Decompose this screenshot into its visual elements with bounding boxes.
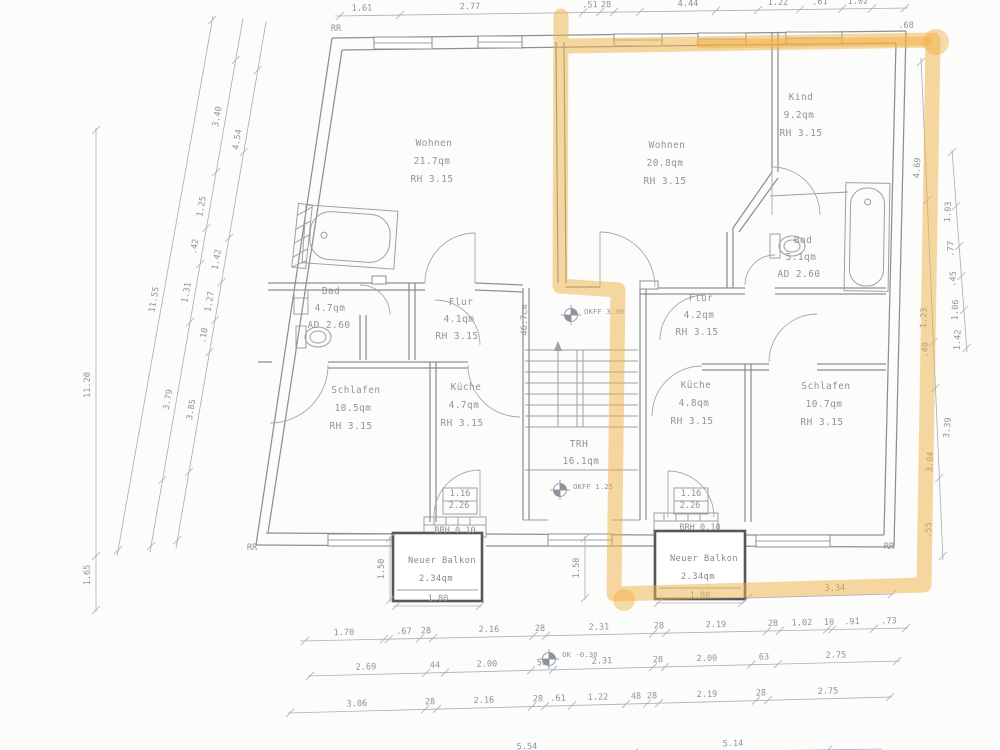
dim-label: 1.61	[352, 3, 373, 13]
level-marker-mid: OKFF 1.25	[550, 480, 613, 500]
dimension-chain: 3.06282.1628.611.2248282.19282.75	[286, 686, 894, 717]
dim-label: 2.19	[706, 620, 727, 630]
dim-label: 2.00	[476, 659, 497, 670]
room-area: 4.7qm	[315, 303, 346, 314]
stair-direction-arrow	[554, 341, 562, 351]
dim-label: 11.55	[147, 286, 161, 313]
room-area: 10.5qm	[335, 403, 372, 414]
dim-label: 4.44	[678, 0, 699, 9]
room-area: 21.7qm	[414, 156, 451, 167]
annotation-label: .68	[898, 21, 914, 31]
room-area: 16.1qm	[563, 456, 600, 467]
door-arc	[745, 255, 775, 285]
level-marker-label: OKFF 1.25	[573, 482, 613, 491]
dimension-chain: 3.401.25.421.313.79	[147, 18, 243, 552]
annotation-label: BRH 0.10	[679, 523, 720, 533]
dim-label: 1.31	[180, 282, 193, 304]
room-area: 4.8qm	[679, 398, 710, 409]
room-area: 10.7qm	[806, 399, 843, 410]
dim-label: 3.40	[211, 106, 224, 128]
room-label-kueche-left: Küche	[451, 382, 482, 393]
door-arc	[425, 233, 475, 283]
room-label-schlafen-right: Schlafen	[801, 381, 850, 392]
dimension-chain: 5.545.14	[395, 739, 882, 750]
room-label-schlafen-left: Schlafen	[331, 385, 380, 396]
dim-label: 1.03	[943, 201, 954, 222]
dim-label: 1.02	[792, 618, 813, 628]
dim-label: 2.16	[479, 625, 500, 635]
dim-label: 2.16	[473, 696, 494, 707]
dim-label: 1.22	[768, 0, 789, 8]
dimension-chain: 2.69442.00502.31282.00632.75	[306, 650, 901, 680]
room-label-wohnen-left: Wohnen	[416, 138, 453, 149]
dim-label: 5.14	[723, 739, 744, 749]
dim-label: 28	[535, 624, 546, 634]
dim-label: 28	[768, 619, 779, 629]
dim-tick	[254, 66, 262, 74]
dim-label: 1.42	[211, 249, 224, 271]
dim-label: 3.79	[162, 389, 175, 411]
dim-tick	[159, 476, 167, 484]
dim-tick	[196, 260, 204, 268]
door-arc	[600, 232, 655, 287]
annotation-label: 2.26	[680, 501, 701, 511]
dim-label: 2.75	[817, 686, 838, 697]
dim-label: .10	[198, 327, 211, 344]
dim-label: .91	[844, 617, 860, 627]
dim-label: .61	[550, 694, 566, 704]
dim-label: 2.75	[825, 650, 846, 661]
room-height: RH 3.15	[675, 327, 718, 338]
dim-tick	[114, 546, 122, 554]
room-height: RH 3.15	[410, 174, 453, 185]
room-height: RH 3.15	[779, 128, 822, 139]
room-height: RH 3.15	[670, 416, 713, 427]
room-area: 20.8qm	[647, 158, 684, 169]
dim-label: 4.69	[912, 157, 923, 178]
dim-label: .61	[812, 0, 828, 7]
dim-label: 2.19	[696, 690, 717, 701]
highlight-marker-annotation	[560, 16, 949, 611]
dim-label: 1.25	[195, 196, 208, 218]
balcony-left	[393, 533, 482, 601]
room-area: 4.7qm	[449, 400, 480, 411]
dim-label: 28	[425, 697, 436, 707]
dim-label: 1.02	[848, 0, 869, 7]
floorplan-scan-page: 1.70.67282.16282.31282.19281.0210.91.732…	[0, 0, 1000, 750]
dim-label: 5.54	[517, 742, 538, 750]
dimension-chains: 1.70.67282.16282.31282.19281.0210.91.732…	[83, 0, 971, 750]
dim-label: 28	[654, 621, 665, 631]
floorplan-canvas: 1.70.67282.16282.31282.19281.0210.91.732…	[0, 0, 1000, 750]
dim-label: 28	[601, 0, 612, 10]
dimension-chain: 11.55	[114, 16, 216, 556]
dim-label: 3.06	[346, 699, 367, 710]
dim-label: 2.31	[589, 622, 610, 632]
dim-tick	[232, 56, 240, 64]
dim-label: .77	[946, 241, 957, 257]
room-labels: Wohnen 21.7qm RH 3.15 Wohnen 20.8qm RH 3…	[307, 92, 850, 584]
sink-icon	[294, 290, 308, 314]
dim-tick	[147, 542, 155, 550]
room-label-bad-right: Bad	[794, 235, 812, 246]
bathtub-icon	[844, 183, 890, 292]
dim-label: 10	[824, 618, 835, 628]
room-label-balkon-left: Neuer Balkon	[408, 556, 476, 566]
room-area: 2.34qm	[419, 574, 453, 584]
level-marker-ground: OK -0.30	[539, 649, 598, 669]
room-height: RH 3.15	[800, 417, 843, 428]
dim-label: 44	[430, 661, 441, 671]
dim-label: 1.65	[83, 565, 93, 586]
dimension-chain: 1.612.77.51284.441.22.611.02	[335, 0, 909, 20]
room-height: AD 2.60	[777, 269, 820, 280]
dim-label: 2.69	[355, 662, 376, 673]
room-area: 4.2qm	[684, 310, 715, 321]
door-arc	[769, 314, 817, 362]
dim-label: .67	[396, 627, 412, 637]
annotation-label: 3.39	[942, 417, 954, 438]
room-area: 9.2qm	[784, 110, 815, 121]
dim-tick	[218, 278, 226, 286]
dim-tick	[173, 536, 181, 544]
annotation-label: BRH 0.10	[434, 526, 475, 536]
annotation-label: RR	[884, 542, 895, 552]
door-arc	[772, 167, 820, 215]
room-label-flur-left: Flur	[449, 297, 474, 308]
dimension-chain: 1.70.67282.16282.31282.19281.0210.91.73	[300, 616, 910, 645]
annotation-label: 46.7cm	[520, 304, 530, 335]
dim-label: 28	[421, 626, 432, 636]
dim-label: 63	[759, 652, 770, 662]
room-label-balkon-right: Neuer Balkon	[670, 554, 738, 564]
dim-label: 1.50	[377, 559, 387, 580]
dimension-chain: 11.201.65	[83, 126, 100, 614]
room-area: 5.1qm	[786, 252, 817, 263]
dim-tick	[212, 168, 220, 176]
dim-label: 1.22	[587, 693, 608, 704]
dim-label: 1.50	[572, 558, 582, 579]
dim-tick	[225, 234, 233, 242]
room-label-bad-left: Bad	[322, 286, 340, 297]
dim-label: .45	[948, 271, 959, 287]
highlight-blob	[613, 589, 635, 611]
dim-label: .73	[881, 616, 897, 626]
room-height: RH 3.15	[435, 331, 478, 342]
room-area: 2.34qm	[681, 572, 715, 582]
dimension-line	[117, 16, 213, 556]
highlight-blob	[923, 29, 949, 55]
dim-label: 11.20	[83, 372, 93, 398]
dim-label: 28	[653, 655, 664, 665]
room-label-wohnen-right: Wohnen	[649, 140, 686, 151]
room-height: RH 3.15	[440, 418, 483, 429]
annotation-label: RR	[331, 24, 342, 34]
dim-label: .51	[582, 0, 598, 10]
dim-label: 1.70	[334, 628, 355, 638]
dim-label: .42	[189, 238, 202, 255]
level-marker-label: OK -0.30	[562, 650, 598, 659]
dim-label: 1.06	[950, 299, 961, 320]
annotation-label: 1.16	[450, 489, 471, 499]
room-label-flur-right: Flur	[689, 293, 714, 304]
room-height: RH 3.15	[643, 176, 686, 187]
dim-label: 28	[647, 691, 658, 701]
dim-tick	[211, 316, 219, 324]
dim-label: 48	[631, 692, 642, 702]
dim-label: 1.80	[428, 594, 449, 604]
dim-label: 2.00	[696, 654, 717, 665]
dim-tick	[206, 348, 214, 356]
room-height: RH 3.15	[329, 421, 372, 432]
dim-label: 2.77	[460, 2, 481, 12]
dimension-chain: 1.03.77.451.061.42	[943, 148, 971, 352]
room-height: AD 2.60	[307, 320, 350, 331]
dim-label: 28	[756, 688, 767, 698]
room-label-kind: Kind	[789, 92, 814, 103]
room-label-trh: TRH	[570, 439, 588, 450]
dim-label: 4.54	[231, 129, 244, 151]
dim-label: 1.27	[203, 291, 216, 313]
dim-tick	[186, 318, 194, 326]
dim-tick	[202, 224, 210, 232]
room-area: 4.1qm	[444, 314, 475, 325]
annotation-label: RR	[247, 543, 258, 553]
dim-tick	[208, 16, 216, 24]
doors-layer	[270, 167, 820, 517]
annotation-label: 2.26	[449, 501, 470, 511]
annotation-label: 1.16	[681, 489, 702, 499]
room-label-kueche-right: Küche	[681, 380, 712, 391]
dimension-line	[150, 18, 243, 552]
dimension-line	[335, 8, 908, 16]
dim-label: 3.85	[185, 399, 198, 421]
dim-label: 28	[533, 694, 544, 704]
dim-tick	[185, 468, 193, 476]
dim-label: 1.42	[953, 329, 964, 350]
